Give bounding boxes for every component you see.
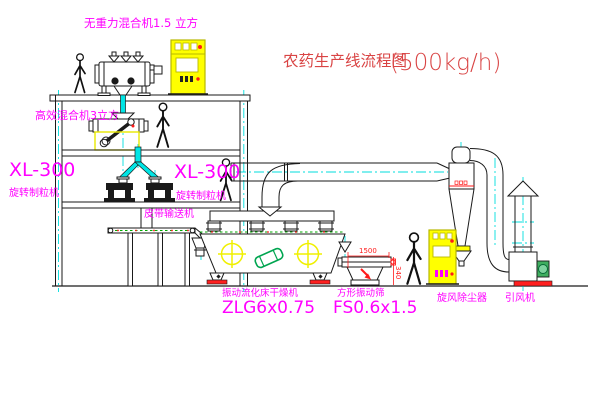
vibrating-sieve: 1500 340 [338, 242, 402, 285]
dryer-exhaust-ports [206, 221, 334, 231]
indicator-lamp-icon [450, 239, 454, 243]
belt-conveyor [108, 228, 208, 286]
gravity-free-mixer [95, 52, 162, 96]
title-capacity: (500kg/h) [390, 50, 501, 76]
mixer-inlet-funnels [109, 52, 143, 62]
fan-base [514, 281, 552, 286]
induced-draft-fan [509, 252, 552, 286]
label-granulator-name-2: 旋转制粒机 [176, 189, 226, 202]
diagram-canvas: 1500 340 农药生产线流程图 (500kg/h) 无重力混合机1.5 立方… [0, 0, 600, 403]
title-text: 农药生产线流程图 [283, 52, 407, 70]
dim-sieve-height: 340 [394, 266, 402, 279]
mixer-discharge-funnel [114, 86, 132, 95]
dim-sieve-length: 1500 [359, 247, 377, 255]
mixer-motor [154, 66, 162, 74]
label-dryer-model: ZLG6x0.75 [222, 298, 315, 318]
worker-icon-ground [407, 233, 420, 284]
control-cabinet-top [168, 40, 208, 94]
conveyor-leg [158, 233, 163, 286]
fan-suction-duct [470, 149, 509, 273]
label-granulator-model-2: XL-300 [174, 161, 240, 183]
worker-icon-second-floor [157, 103, 168, 147]
label-second-mixer: 高效混合机3立方 [35, 108, 119, 122]
granulator-2 [144, 177, 175, 202]
label-belt-conveyor: 皮带输送机 [144, 207, 194, 220]
process-flow-diagram: 1500 340 农药生产线流程图 (500kg/h) 无重力混合机1.5 立方… [0, 0, 600, 403]
dryer-mount-pad [207, 280, 227, 284]
conveyor-leg [185, 233, 190, 286]
control-cabinet-right [426, 230, 459, 284]
indicator-lamp-icon [198, 45, 202, 49]
stack-rain-cap [508, 181, 538, 196]
worker-icon-top-floor [75, 54, 85, 93]
granulator-1 [104, 177, 135, 202]
label-fan: 引风机 [505, 291, 535, 304]
dryer-mount-pad [310, 280, 330, 284]
drawing-title: 农药生产线流程图 (500kg/h) [283, 50, 501, 76]
fluid-bed-dryer [200, 211, 345, 284]
label-top-mixer: 无重力混合机1.5 立方 [84, 16, 198, 30]
label-cyclone: 旋风除尘器 [437, 291, 487, 304]
label-sieve-model: FS0.6x1.5 [333, 298, 417, 318]
label-granulator-model-1: XL-300 [9, 159, 75, 181]
feed-chute-1 [121, 95, 126, 113]
conveyor-leg [128, 233, 133, 286]
exhaust-duct [231, 163, 450, 216]
label-granulator-name-1: 旋转制粒机 [9, 186, 59, 199]
